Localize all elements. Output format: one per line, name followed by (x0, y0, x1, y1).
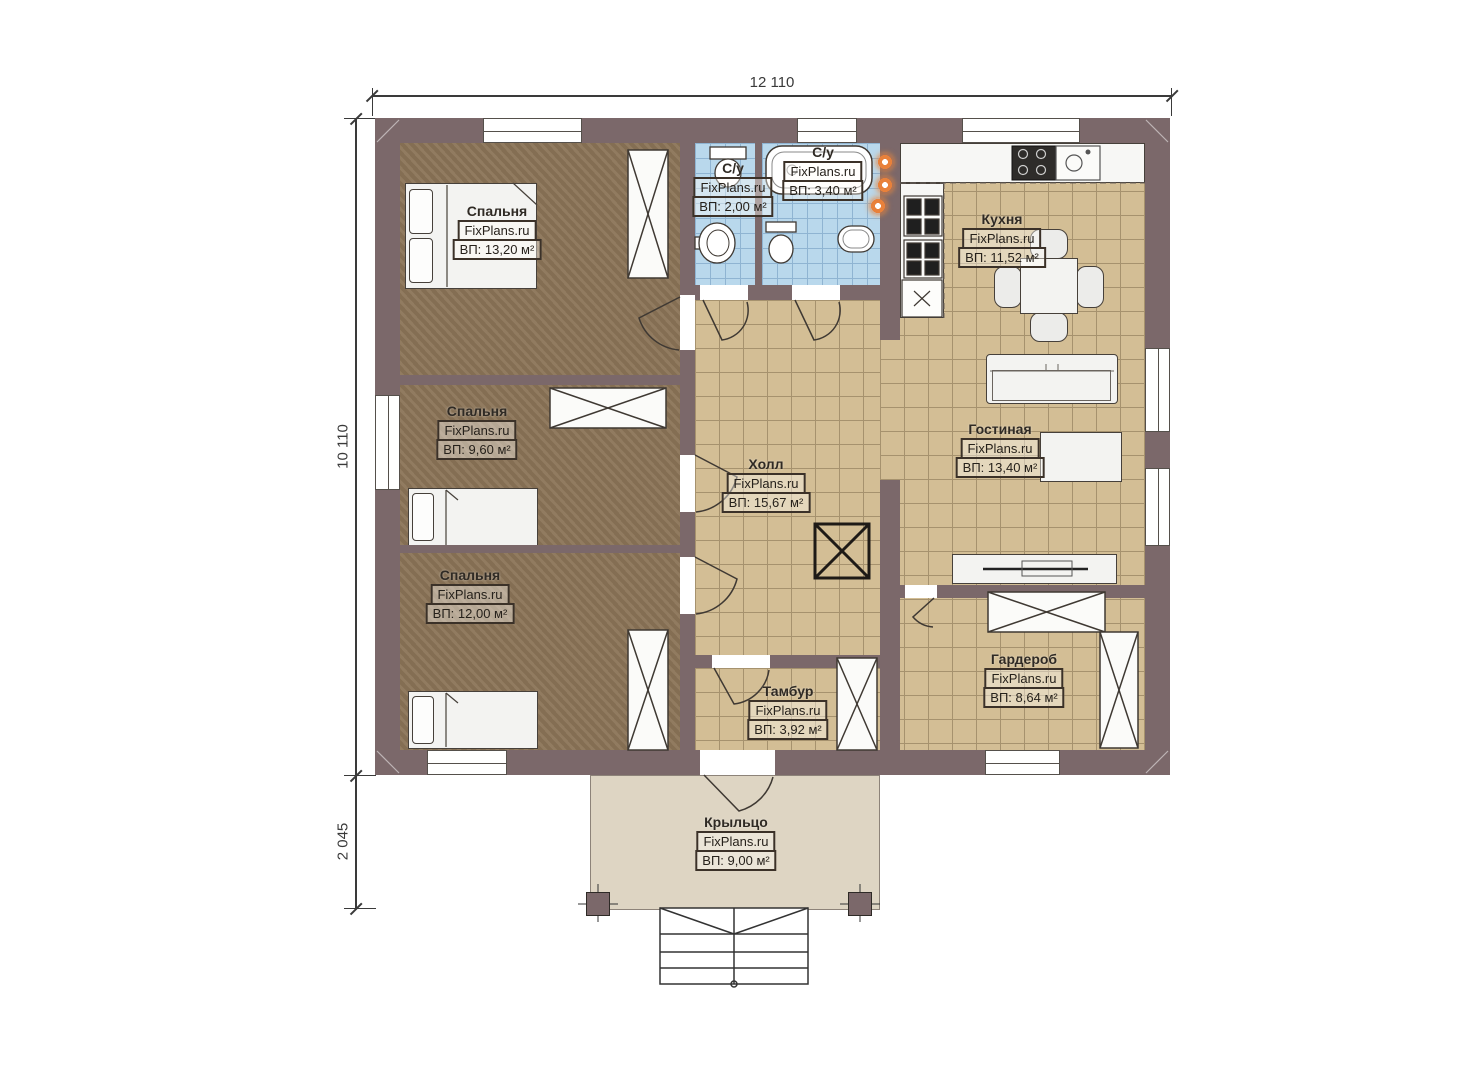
kitchen-unit-icon (902, 280, 942, 317)
heating-riser-icon (876, 153, 894, 171)
watermark-fixplans: FixPlans.ru (696, 831, 775, 852)
washbasin-icon (695, 223, 735, 263)
room-name: Крыльцо (704, 814, 768, 831)
room-name: Кухня (982, 211, 1023, 228)
room-label-bedroom-3: Спальня FixPlans.ru ВП: 12,00 м² (426, 567, 515, 624)
room-area: ВП: 3,92 м² (747, 719, 828, 740)
watermark-fixplans: FixPlans.ru (430, 584, 509, 605)
watermark-fixplans: FixPlans.ru (693, 177, 772, 198)
room-name: Гостиная (968, 421, 1031, 438)
toilet-icon (766, 222, 796, 263)
room-label-bedroom-1: Спальня FixPlans.ru ВП: 13,20 м² (453, 203, 542, 260)
watermark-fixplans: FixPlans.ru (457, 220, 536, 241)
floor-plan: Спальня FixPlans.ru ВП: 13,20 м² Спальня… (0, 0, 1473, 1080)
watermark-fixplans: FixPlans.ru (783, 161, 862, 182)
room-name: Спальня (467, 203, 527, 220)
heating-riser-icon (876, 176, 894, 194)
room-area: ВП: 3,40 м² (782, 180, 863, 201)
room-area: ВП: 9,00 м² (695, 850, 776, 871)
bed-linework (446, 183, 537, 747)
room-label-kitchen: Кухня FixPlans.ru ВП: 11,52 м² (958, 211, 1046, 268)
room-label-bathroom-2: С/у FixPlans.ru ВП: 3,40 м² (782, 144, 863, 201)
tv-icon (983, 561, 1088, 576)
stairs-icon (660, 908, 808, 987)
watermark-fixplans: FixPlans.ru (960, 438, 1039, 459)
room-area: ВП: 13,20 м² (453, 239, 542, 260)
room-area: ВП: 9,60 м² (436, 439, 517, 460)
room-label-living: Гостиная FixPlans.ru ВП: 13,40 м² (956, 421, 1045, 478)
room-name: Холл (748, 456, 783, 473)
wardrobe-icon (988, 592, 1105, 632)
washbasin-icon (838, 226, 874, 252)
porch-post (586, 892, 610, 916)
room-label-tambour: Тамбур FixPlans.ru ВП: 3,92 м² (747, 683, 828, 740)
porch-post (848, 892, 872, 916)
room-area: ВП: 13,40 м² (956, 457, 1045, 478)
watermark-fixplans: FixPlans.ru (726, 473, 805, 494)
sink-icon (1056, 146, 1100, 180)
wardrobe-icon (550, 388, 666, 428)
wardrobe-icon (1100, 632, 1138, 748)
wardrobe-icon (628, 150, 668, 278)
room-name: Гардероб (991, 651, 1057, 668)
room-area: ВП: 12,00 м² (426, 603, 515, 624)
room-label-hall: Холл FixPlans.ru ВП: 15,67 м² (722, 456, 811, 513)
watermark-fixplans: FixPlans.ru (748, 700, 827, 721)
room-label-wardrobe: Гардероб FixPlans.ru ВП: 8,64 м² (983, 651, 1064, 708)
room-name: С/у (812, 144, 834, 161)
room-name: Тамбур (763, 683, 814, 700)
watermark-fixplans: FixPlans.ru (984, 668, 1063, 689)
room-area: ВП: 8,64 м² (983, 687, 1064, 708)
watermark-fixplans: FixPlans.ru (437, 420, 516, 441)
chimney-icon (815, 524, 869, 578)
room-name: Спальня (440, 567, 500, 584)
wardrobe-icon (628, 630, 668, 750)
room-area: ВП: 15,67 м² (722, 492, 811, 513)
room-name: С/у (722, 160, 744, 177)
oven-icon (904, 196, 942, 278)
room-label-bedroom-2: Спальня FixPlans.ru ВП: 9,60 м² (436, 403, 517, 460)
room-name: Спальня (447, 403, 507, 420)
room-label-porch: Крыльцо FixPlans.ru ВП: 9,00 м² (695, 814, 776, 871)
room-area: ВП: 11,52 м² (958, 247, 1046, 268)
heating-riser-icon (869, 197, 887, 215)
room-label-bathroom-1: С/у FixPlans.ru ВП: 2,00 м² (692, 160, 773, 217)
room-area: ВП: 2,00 м² (692, 196, 773, 217)
stove-icon (1012, 146, 1056, 180)
wardrobe-icon (837, 658, 877, 750)
sofa-linework (990, 364, 1114, 371)
watermark-fixplans: FixPlans.ru (962, 228, 1041, 249)
